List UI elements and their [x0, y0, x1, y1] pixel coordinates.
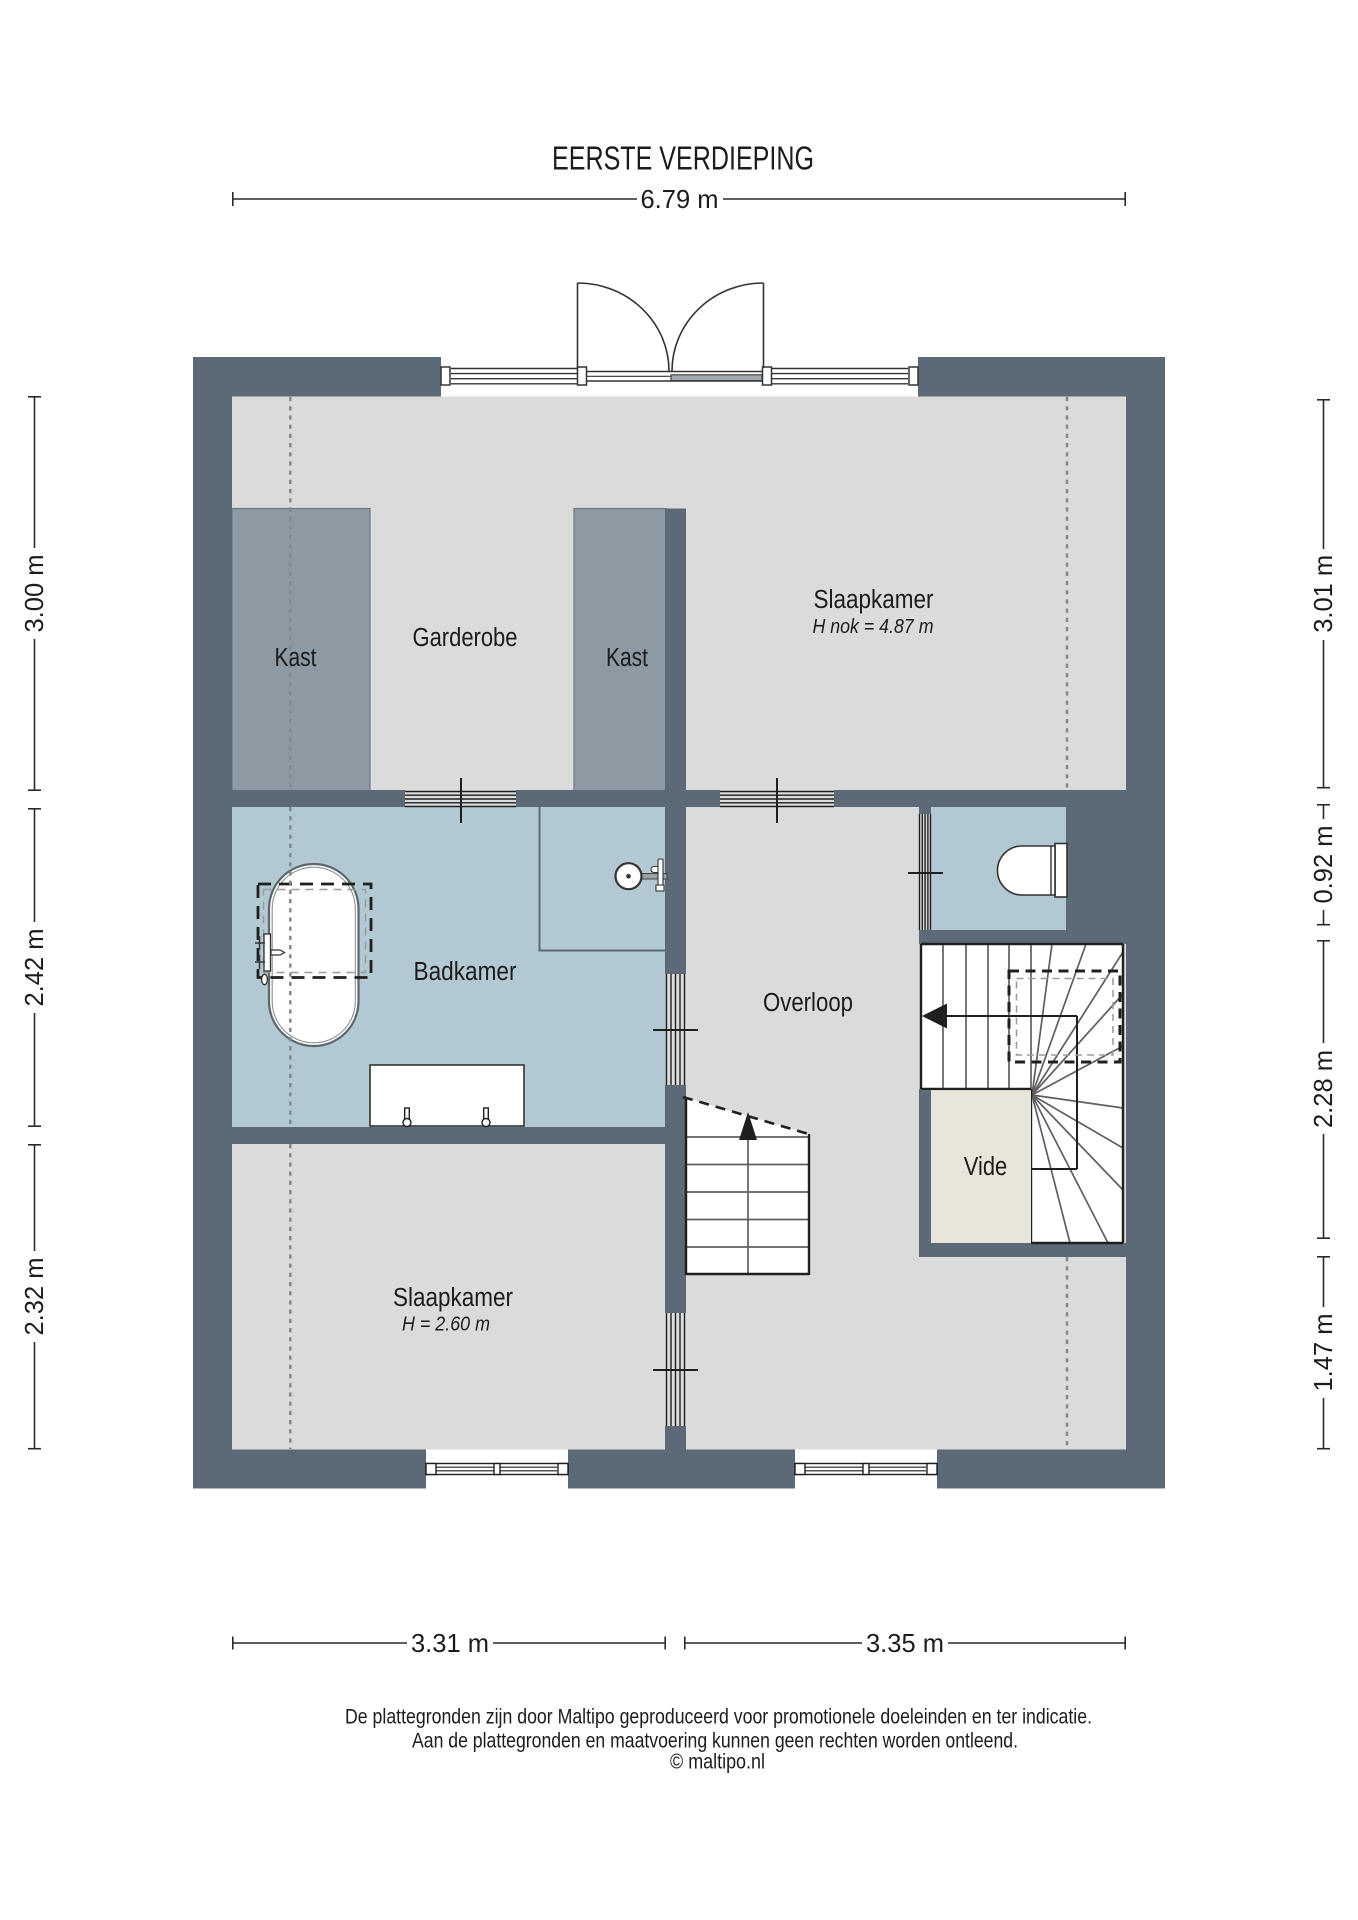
svg-text:De plattegronden zijn door Mal: De plattegronden zijn door Maltipo gepro… [345, 1705, 1092, 1729]
svg-text:© maltipo.nl: © maltipo.nl [670, 1750, 765, 1774]
svg-text:Slaapkamer: Slaapkamer [814, 586, 934, 614]
svg-text:6.79 m: 6.79 m [641, 184, 719, 214]
svg-text:Overloop: Overloop [763, 989, 853, 1017]
svg-text:0.92 m: 0.92 m [1308, 826, 1338, 904]
svg-text:Kast: Kast [606, 644, 648, 672]
svg-text:2.32 m: 2.32 m [19, 1258, 49, 1336]
svg-text:Vide: Vide [964, 1153, 1008, 1181]
svg-text:3.35 m: 3.35 m [866, 1628, 944, 1658]
svg-text:EERSTE VERDIEPING: EERSTE VERDIEPING [552, 140, 814, 177]
svg-text:3.00 m: 3.00 m [19, 555, 49, 633]
svg-text:3.31 m: 3.31 m [411, 1628, 489, 1658]
svg-text:Kast: Kast [275, 644, 317, 672]
svg-text:Slaapkamer: Slaapkamer [393, 1284, 513, 1312]
svg-text:2.42 m: 2.42 m [19, 929, 49, 1007]
svg-text:Garderobe: Garderobe [413, 624, 518, 652]
svg-text:H nok = 4.87 m: H nok = 4.87 m [813, 615, 934, 638]
svg-text:3.01 m: 3.01 m [1308, 555, 1338, 633]
svg-text:H = 2.60 m: H = 2.60 m [402, 1313, 490, 1336]
svg-text:2.28 m: 2.28 m [1308, 1050, 1338, 1128]
svg-text:Badkamer: Badkamer [414, 958, 517, 986]
svg-text:1.47 m: 1.47 m [1308, 1314, 1338, 1392]
